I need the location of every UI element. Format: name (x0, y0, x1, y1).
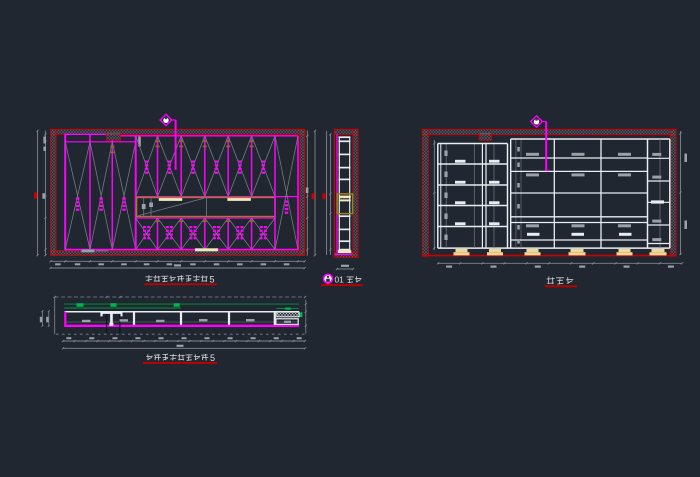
svg-text:5: 5 (210, 353, 215, 363)
svg-text:5: 5 (210, 274, 215, 284)
svg-text:01: 01 (335, 275, 345, 285)
